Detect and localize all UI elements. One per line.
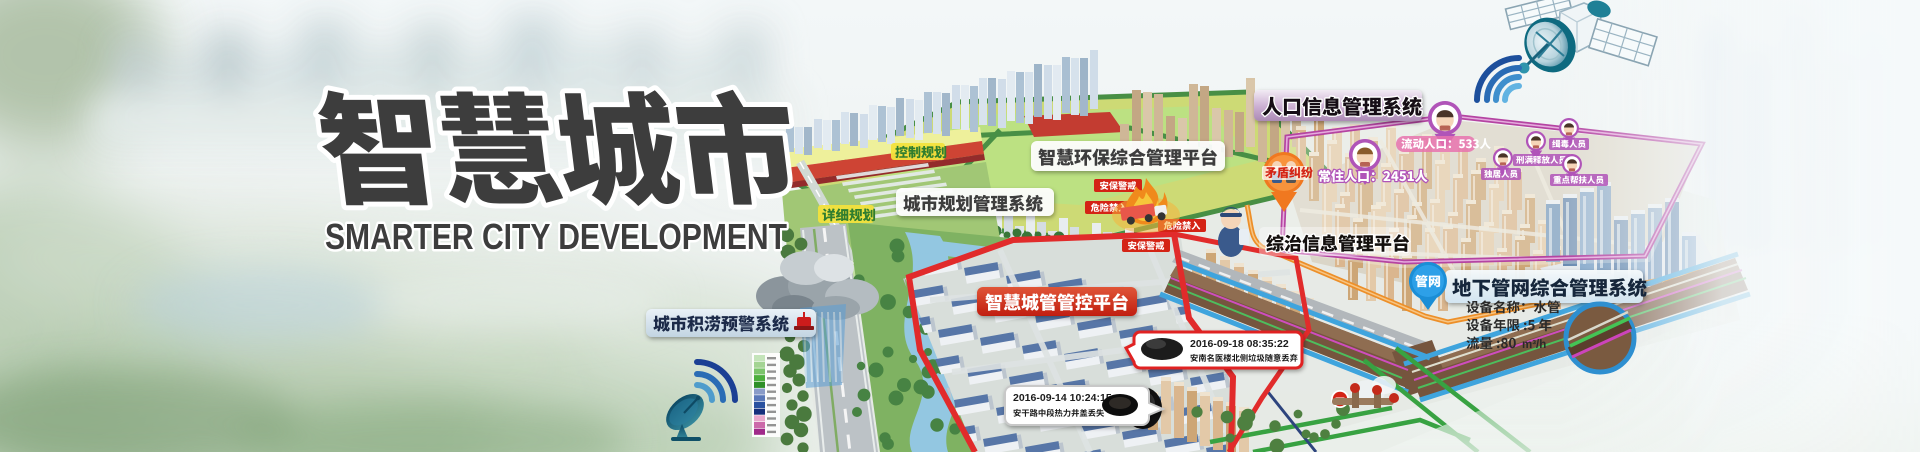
svg-text:2016-09-14 10:24:15: 2016-09-14 10:24:15 bbox=[1013, 392, 1112, 404]
svg-text:m³/h: m³/h bbox=[1522, 339, 1546, 351]
svg-text:2016-09-18 08:35:22: 2016-09-18 08:35:22 bbox=[1190, 338, 1289, 350]
svg-text:SMARTER CITY DEVELOPMENT: SMARTER CITY DEVELOPMENT bbox=[325, 216, 787, 257]
